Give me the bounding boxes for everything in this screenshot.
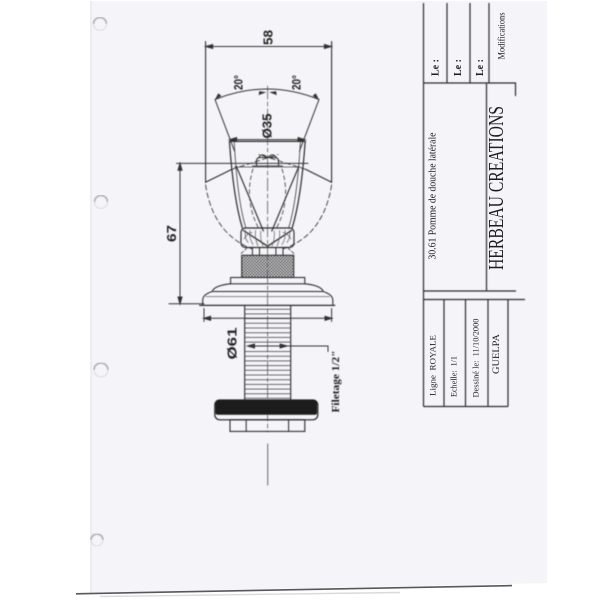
svg-text:HERBEAU CREATIONS: HERBEAU CREATIONS	[484, 106, 508, 270]
svg-text:Echelle: 1/1: Echelle: 1/1	[448, 356, 458, 397]
svg-text:Le :: Le :	[475, 59, 486, 76]
svg-text:Filetage 1/2": Filetage 1/2"	[331, 351, 342, 413]
svg-text:GUELPA: GUELPA	[491, 333, 501, 374]
svg-text:20°: 20°	[290, 75, 304, 90]
svg-text:Dessiné le: 11/10/2000: Dessiné le: 11/10/2000	[470, 319, 480, 398]
svg-text:Modifications: Modifications	[497, 12, 507, 59]
svg-text:58: 58	[260, 30, 275, 45]
svg-text:Le :: Le :	[430, 59, 441, 76]
svg-text:67: 67	[164, 225, 179, 242]
svg-text:Ø35: Ø35	[259, 114, 274, 139]
svg-text:Ø61: Ø61	[224, 328, 239, 360]
svg-text:Ligne ROYALE: Ligne ROYALE	[427, 335, 437, 396]
svg-text:30.61 Pomme de douche latérale: 30.61 Pomme de douche latérale	[427, 132, 438, 259]
svg-text:20°: 20°	[232, 75, 246, 90]
svg-text:Le :: Le :	[453, 59, 464, 76]
